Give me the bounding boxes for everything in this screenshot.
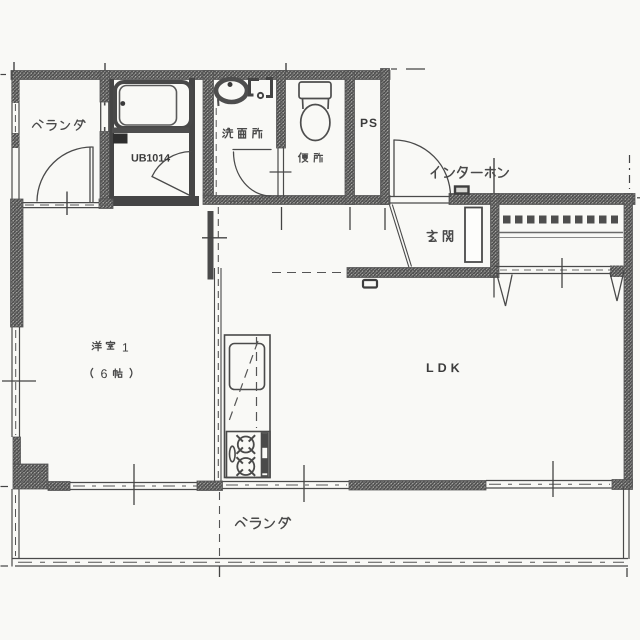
- svg-text:1: 1: [122, 341, 129, 355]
- svg-text:PS: PS: [360, 116, 378, 130]
- svg-text:LDK: LDK: [426, 361, 464, 375]
- svg-text:6: 6: [100, 367, 107, 381]
- svg-text:UB1014: UB1014: [131, 153, 170, 165]
